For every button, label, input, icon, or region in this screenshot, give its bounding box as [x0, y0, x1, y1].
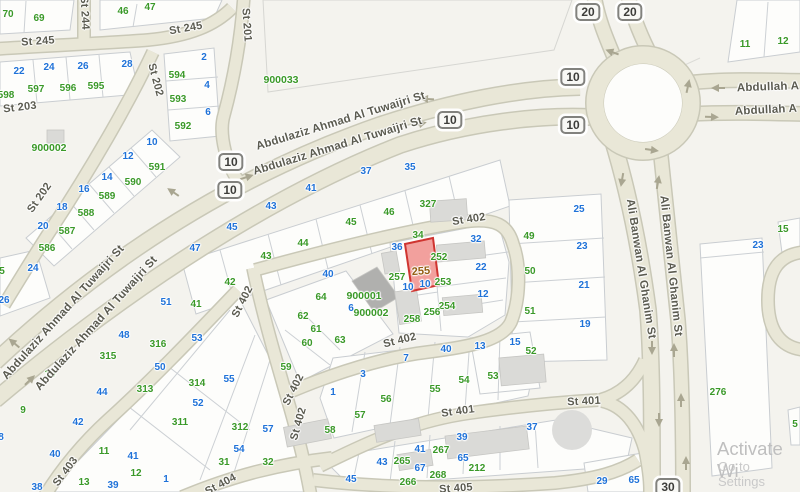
house-number-blue: 40 [440, 345, 451, 355]
street-label: St 244 [78, 0, 91, 30]
house-number-blue: 50 [154, 363, 165, 373]
parcel-number-green: 61 [310, 325, 321, 335]
parcel-number-green: 254 [439, 302, 456, 312]
house-number-blue: 26 [0, 296, 10, 306]
house-number-blue: 53 [191, 334, 202, 344]
parcel-number-green: 42 [224, 278, 235, 288]
house-number-blue: 4 [204, 81, 210, 91]
parcel-number-green: 11 [99, 447, 110, 457]
house-number-blue: 39 [456, 433, 467, 443]
parcel-number-green: 45 [345, 218, 356, 228]
route-shield-20: 20 [617, 3, 642, 21]
parcel-number-green: 265 [394, 457, 411, 467]
watermark-subtext: Go to Settings [718, 459, 800, 489]
house-number-blue: 13 [474, 342, 485, 352]
parcel-number-green: 59 [280, 363, 291, 373]
parcel-number-green: 44 [297, 239, 308, 249]
house-number-blue: 24 [27, 264, 38, 274]
house-number-blue: 29 [596, 477, 607, 487]
utility-code-label: 900033 [263, 75, 298, 86]
parcel-number-green: 69 [33, 14, 44, 24]
parcel-number-green: 596 [60, 84, 77, 94]
house-number-blue: 65 [457, 454, 468, 464]
parcel-number-green: 63 [334, 336, 345, 346]
house-number-blue: 3 [360, 370, 366, 380]
house-number-blue: 18 [56, 203, 67, 213]
parcel-number-green: 50 [524, 267, 535, 277]
parcel-number-green: 64 [315, 293, 326, 303]
house-number-blue: 40 [49, 450, 60, 460]
parcel-number-green: 256 [424, 308, 441, 318]
parcel-number-green: 312 [232, 423, 249, 433]
house-number-blue: 6 [205, 108, 211, 118]
parcel-number-green: 327 [420, 200, 437, 210]
parcel-number-green: 252 [431, 253, 448, 263]
parcel-number-green: 590 [125, 178, 142, 188]
parcel-number-green: 589 [99, 192, 116, 202]
parcel-number-green: 267 [433, 446, 450, 456]
street-label: St 201 [239, 8, 252, 42]
parcel-number-green: 11 [740, 40, 751, 50]
house-number-blue: 45 [226, 223, 237, 233]
house-number-blue: 6 [348, 304, 354, 314]
parcel-number-green: 591 [149, 163, 166, 173]
route-shield-10: 10 [437, 111, 462, 129]
house-number-blue: 19 [579, 320, 590, 330]
parcel-number-green: 55 [429, 385, 440, 395]
house-number-blue: 54 [233, 445, 244, 455]
house-number-blue: 32 [470, 235, 481, 245]
house-number-blue: 36 [391, 243, 402, 253]
parcel-number-green: 56 [380, 395, 391, 405]
street-label: St 401 [567, 396, 601, 409]
parcel-number-green: 46 [383, 208, 394, 218]
parcel-number-green: 276 [710, 388, 727, 398]
house-number-blue: 38 [31, 483, 42, 492]
house-number-blue: 28 [121, 60, 132, 70]
house-number-blue: 57 [262, 425, 273, 435]
map-canvas[interactable]: 7069464759859759659559459359259159058958… [0, 0, 800, 492]
house-number-blue: 26 [77, 62, 88, 72]
parcel-number-green: 5 [792, 420, 798, 430]
house-number-blue: 55 [223, 375, 234, 385]
house-number-blue: 35 [404, 163, 415, 173]
route-shield-30: 30 [655, 478, 680, 492]
route-shield-10: 10 [560, 116, 585, 134]
house-number-blue: 12 [477, 290, 488, 300]
parcel-number-green: 314 [189, 379, 206, 389]
parcel-number-green: 311 [172, 418, 188, 428]
parcel-number-green: 593 [170, 95, 187, 105]
utility-code-label: 900002 [31, 143, 66, 154]
parcel-number-green: 43 [260, 252, 271, 262]
house-number-blue: 21 [578, 281, 589, 291]
parcel-number-green: 52 [525, 347, 536, 357]
selected-parcel-label: 255 [411, 266, 430, 278]
parcel-number-green: 54 [458, 376, 469, 386]
parcel-number-green: 32 [262, 458, 273, 468]
house-number-blue: 10 [419, 280, 430, 290]
parcel-number-green: 62 [297, 312, 308, 322]
house-number-blue: 2 [201, 53, 207, 63]
house-number-blue: 22 [13, 67, 24, 77]
parcel-number-green: 315 [100, 352, 117, 362]
parcel-number-green: 586 [39, 244, 56, 254]
house-number-blue: 10 [146, 138, 157, 148]
parcel-number-green: 587 [59, 227, 76, 237]
parcel-number-green: 253 [435, 278, 452, 288]
house-number-blue: 23 [576, 242, 587, 252]
house-number-blue: 39 [107, 481, 118, 491]
house-number-blue: 22 [475, 263, 486, 273]
street-label: Abdullah A [737, 81, 800, 95]
parcel-number-green: 15 [777, 225, 788, 235]
house-number-blue: 10 [402, 283, 413, 293]
house-number-blue: 51 [160, 298, 171, 308]
house-number-blue: 45 [345, 475, 356, 485]
parcel-number-green: 58 [324, 426, 335, 436]
parcel-number-green: 70 [2, 10, 13, 20]
parcel-number-green: 46 [117, 7, 128, 17]
house-number-blue: 1 [330, 388, 336, 398]
house-number-blue: 42 [72, 418, 83, 428]
house-number-blue: 37 [526, 423, 537, 433]
parcel-number-green: 31 [218, 458, 229, 468]
house-number-blue: 40 [322, 270, 333, 280]
house-number-blue: 43 [265, 202, 276, 212]
house-number-blue: 15 [509, 338, 520, 348]
parcel-number-green: 13 [78, 478, 89, 488]
house-number-blue: 41 [127, 452, 138, 462]
house-number-blue: 37 [360, 167, 371, 177]
utility-code-label: 900002 [353, 308, 388, 319]
house-number-blue: 41 [414, 445, 425, 455]
parcel-number-green: 212 [469, 464, 486, 474]
house-number-blue: 20 [37, 222, 48, 232]
house-number-blue: 23 [752, 241, 763, 251]
round-feature [552, 410, 592, 450]
parcel-number-green: 598 [0, 91, 14, 101]
parcel-number-green: 51 [524, 307, 535, 317]
parcel-number-green: 34 [412, 231, 423, 241]
house-number-blue: 12 [122, 152, 133, 162]
parcel-number-green: 313 [137, 385, 154, 395]
parcel-number-green: 9 [20, 406, 26, 416]
utility-code-label: 900001 [346, 291, 381, 302]
parcel-number-green: 595 [88, 82, 105, 92]
house-number-blue: 24 [43, 63, 54, 73]
house-number-blue: 25 [573, 205, 584, 215]
house-number-blue: 16 [78, 185, 89, 195]
parcel-number-green: 597 [28, 85, 45, 95]
house-number-blue: 48 [118, 331, 129, 341]
parcel-number-green: 60 [301, 339, 312, 349]
route-shield-10: 10 [218, 153, 243, 171]
route-shield-10: 10 [560, 68, 585, 86]
house-number-blue: 1 [163, 475, 169, 485]
route-shield-20: 20 [575, 3, 600, 21]
house-number-blue: 14 [101, 173, 112, 183]
house-number-blue: 65 [628, 476, 639, 486]
route-shield-10: 10 [217, 181, 242, 199]
parcel-number-green: 266 [400, 478, 417, 488]
street-label: St 405 [439, 482, 473, 492]
house-number-blue: 67 [414, 464, 425, 474]
parcel-number-green: 41 [190, 300, 201, 310]
parcel-number-green: 258 [404, 315, 421, 325]
parcel-number-green: 588 [78, 209, 95, 219]
parcel-number-green: 53 [487, 372, 498, 382]
parcel-number-green: 594 [169, 71, 186, 81]
house-number-blue: 8 [0, 433, 4, 443]
house-number-blue: 52 [192, 399, 203, 409]
house-number-blue: 41 [305, 184, 316, 194]
parcel-number-green: 49 [523, 232, 534, 242]
parcel-number-green: 47 [144, 3, 155, 13]
roundabout [595, 55, 691, 151]
house-number-blue: 43 [376, 458, 387, 468]
house-number-blue: 47 [189, 244, 200, 254]
parcel-number-green: 268 [430, 471, 447, 481]
parcel-number-green: 5 [0, 267, 5, 277]
parcel-number-green: 316 [150, 340, 167, 350]
house-number-blue: 7 [403, 354, 409, 364]
parcel-number-green: 592 [175, 122, 192, 132]
house-number-blue: 44 [96, 388, 107, 398]
parcel-number-green: 12 [130, 469, 141, 479]
street-label: St 245 [21, 35, 55, 48]
parcel-number-green: 12 [777, 37, 788, 47]
parcel-number-green: 57 [354, 411, 365, 421]
